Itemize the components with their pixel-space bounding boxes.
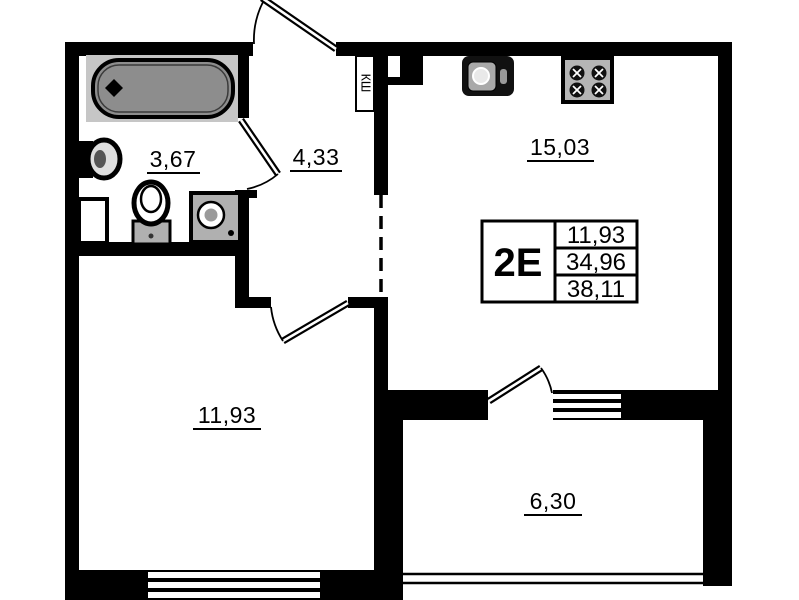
kitchen-area-label: 15,03 <box>530 134 590 160</box>
window-stripe <box>148 592 320 598</box>
wall-left <box>65 42 79 600</box>
table-value-living: 11,93 <box>567 222 625 249</box>
wall-shaft-arm <box>388 77 423 85</box>
window-stripe <box>148 572 320 578</box>
wall-top-left <box>65 42 253 56</box>
window-balcony-front <box>553 394 621 418</box>
table-value-area: 34,96 <box>566 249 626 276</box>
hallway-area-label: 4,33 <box>293 144 340 170</box>
duct-label: КШ <box>359 74 373 93</box>
washing-machine-icon <box>191 193 240 242</box>
living-room-door <box>271 303 348 341</box>
balcony-door <box>489 368 552 401</box>
walls <box>65 42 732 600</box>
door-swing-arc <box>247 174 278 189</box>
balcony-area-label: 6,30 <box>530 488 577 514</box>
floor-plan-page: КШ 3,67 4,33 15,03 11,93 6,30 2Е 11,93 3… <box>0 0 799 600</box>
living-room-area-label: 11,93 <box>198 402 256 428</box>
window-living-room <box>148 572 320 598</box>
window-stripe <box>553 394 621 399</box>
window-stripe <box>553 412 621 418</box>
unit-type-label: 2Е <box>494 241 543 285</box>
door-swing-arc <box>271 307 283 341</box>
wall-right-balcony <box>703 420 732 586</box>
stove-icon <box>563 58 612 102</box>
window-stripe <box>553 403 621 408</box>
entrance-door <box>254 0 336 49</box>
unit-info-table: 2Е 11,93 34,96 38,11 <box>482 221 637 303</box>
table-value-total: 38,11 <box>567 276 625 303</box>
bathroom-door <box>241 120 278 189</box>
wall-right-kitchen <box>718 56 732 420</box>
wall-top-right <box>336 42 732 56</box>
door-swing-arc <box>254 2 263 44</box>
wall-hall-kitchen <box>374 56 388 195</box>
toilet-icon <box>133 182 170 244</box>
shaft-niche <box>79 199 107 243</box>
wall-room-stub-left <box>235 297 271 308</box>
floor-plan-svg: КШ 3,67 4,33 15,03 11,93 6,30 2Е 11,93 3… <box>0 0 799 600</box>
window-stripe <box>148 582 320 588</box>
bathtub-icon <box>86 55 238 122</box>
bathroom-area-label: 3,67 <box>150 146 197 172</box>
washbasin-icon <box>79 140 120 178</box>
wall-room-balcony <box>374 390 403 586</box>
duct-box: КШ <box>356 56 374 111</box>
balcony-glazing <box>403 574 703 583</box>
wall-balcony-front-left <box>403 390 488 420</box>
door-swing-arc <box>541 368 552 393</box>
kitchen-sink-icon <box>462 56 514 96</box>
wall-room-kitchen <box>374 297 388 390</box>
